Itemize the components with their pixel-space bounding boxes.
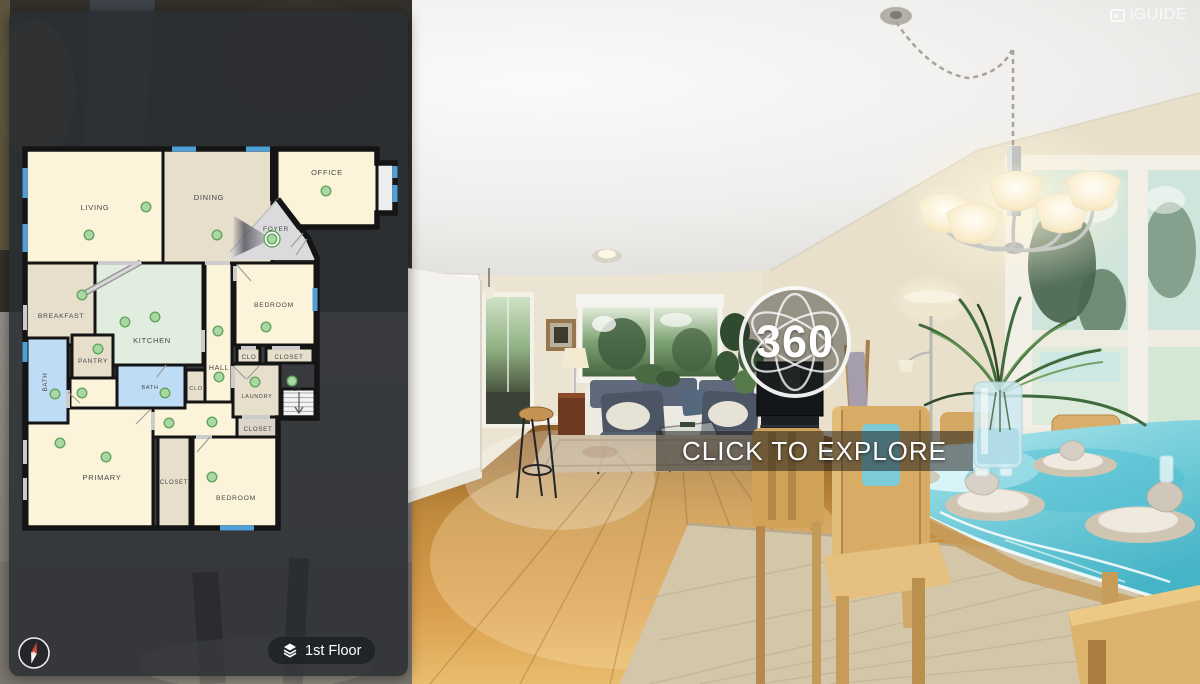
foreground-pillar [408,268,482,503]
layers-icon [282,642,298,659]
floor-selector-label: 1st Floor [305,643,361,659]
badge-360-label: 360 [743,290,847,394]
compass-icon [17,636,51,670]
doorway [482,292,534,428]
floorplan-panel [9,11,408,676]
ceiling-light [592,249,622,263]
iguide-logo-text: iGUIDE [1130,6,1187,24]
compass[interactable] [17,636,51,670]
framed-picture [546,319,576,351]
igude-360-viewer: iGUIDE 360 CLICK TO EXPLORE [0,0,1200,684]
explore-360-button[interactable]: 360 [739,286,851,398]
blanket [847,352,868,409]
table-lamp [561,348,589,368]
click-to-explore-button[interactable]: CLICK TO EXPLORE [656,431,973,471]
iguide-logo[interactable]: iGUIDE [1110,6,1187,24]
iguide-camera-icon [1110,9,1125,22]
floor-selector-button[interactable]: 1st Floor [268,637,375,664]
